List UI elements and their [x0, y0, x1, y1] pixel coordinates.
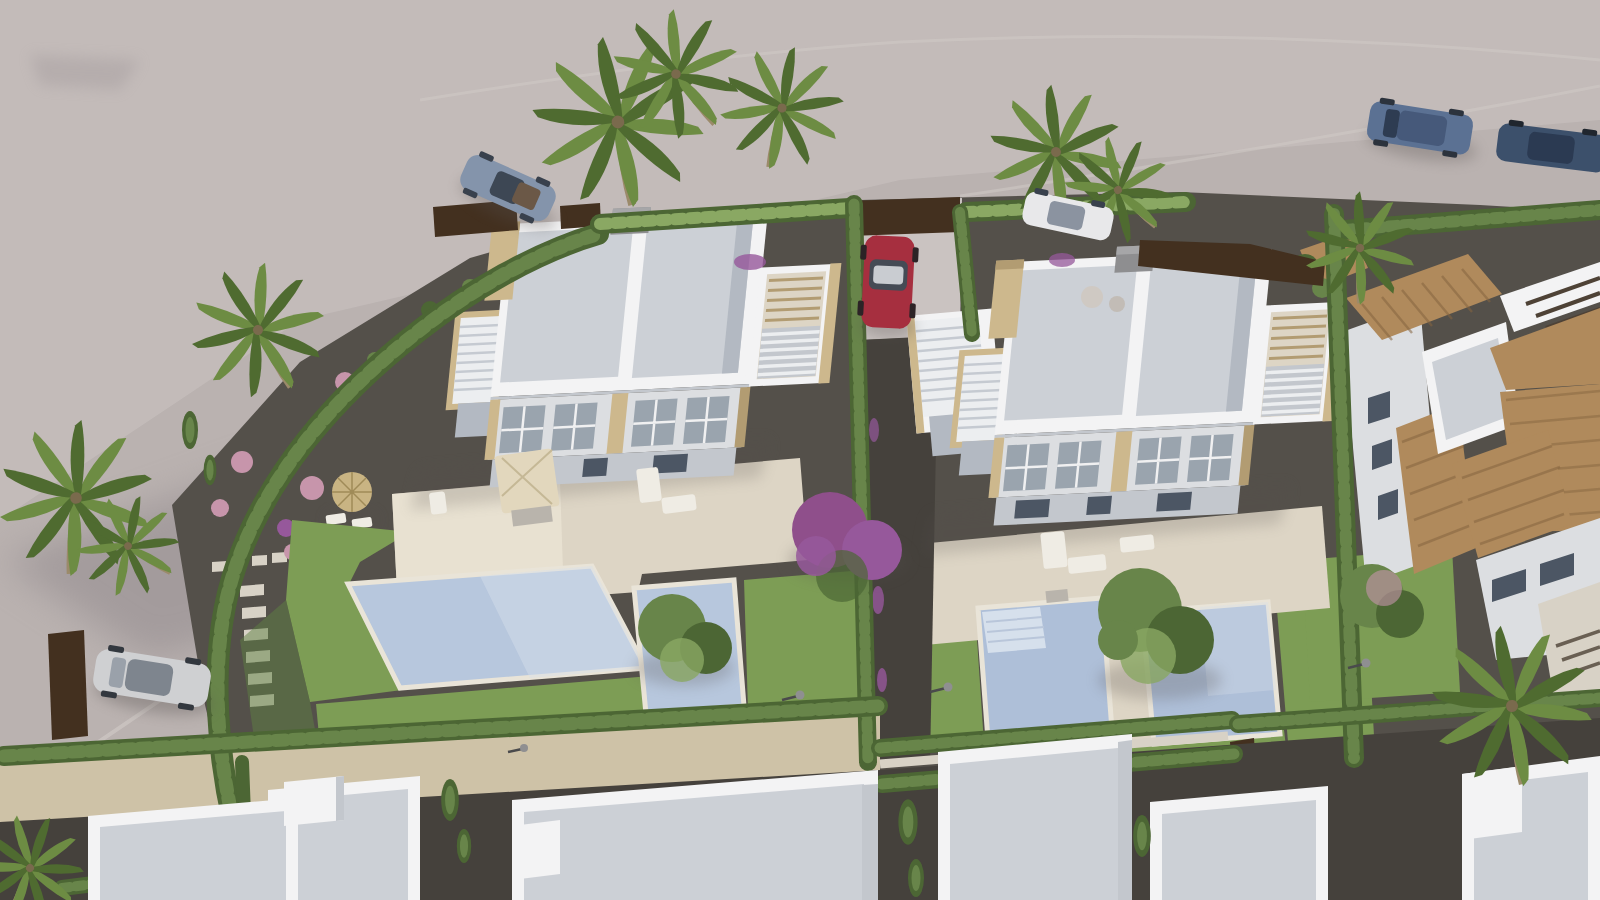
cypress — [898, 799, 917, 845]
bougainvillea-flowers — [869, 418, 879, 442]
outdoor-sofa — [1040, 531, 1068, 569]
lamp-head — [520, 744, 528, 752]
bougainvillea-flowers — [872, 586, 884, 614]
cypress — [457, 829, 471, 863]
cypress — [182, 411, 198, 449]
blossoms — [1366, 570, 1402, 606]
tree-canopy — [1098, 620, 1138, 660]
pebble-ball-shrub — [1081, 286, 1103, 308]
lavender-patch — [734, 254, 766, 270]
flower-bush — [300, 476, 324, 500]
house-shade — [1118, 740, 1132, 900]
car-wheel — [860, 245, 867, 260]
parapet-cube — [284, 776, 344, 826]
parapet-cube — [1462, 766, 1522, 840]
cypress — [441, 779, 459, 821]
bottom-house-5 — [1462, 756, 1600, 900]
flower-bush — [231, 451, 253, 473]
brown-gate — [48, 630, 88, 740]
pebble-ball-shrub — [1109, 296, 1125, 312]
render-canvas — [0, 0, 1600, 900]
house-roof — [950, 748, 1118, 900]
car-roof-light — [873, 265, 904, 285]
lamp-head — [1362, 659, 1371, 668]
cypress — [1133, 815, 1151, 857]
bottom-house-3 — [938, 734, 1132, 900]
cypress — [204, 455, 217, 485]
lamp-head — [944, 683, 953, 692]
house-shade — [862, 784, 878, 900]
aerial-render — [0, 0, 1600, 900]
tree-canopy — [796, 536, 836, 576]
car-red-driveway — [856, 235, 920, 340]
car-roof — [1526, 131, 1575, 164]
car-wheel — [912, 247, 919, 262]
bottom-house-4 — [1150, 786, 1328, 900]
lamp-head — [796, 691, 805, 700]
tree-canopy — [660, 638, 704, 682]
car-wheel — [909, 303, 916, 318]
cypress — [908, 859, 924, 897]
road-mark — [30, 55, 140, 90]
lavender-patch — [1049, 253, 1075, 267]
coffee-table — [1045, 589, 1068, 603]
outdoor-sofa — [636, 467, 662, 503]
armchair — [429, 491, 448, 515]
car-wheel — [857, 300, 864, 315]
flower-bush — [211, 499, 229, 517]
cube-shade — [336, 776, 344, 821]
entrance-cube — [512, 820, 560, 880]
house-roof — [1162, 800, 1316, 900]
bougainvillea-flowers — [877, 668, 887, 692]
brown-wall — [848, 197, 960, 236]
parasol-ribs — [332, 472, 372, 512]
